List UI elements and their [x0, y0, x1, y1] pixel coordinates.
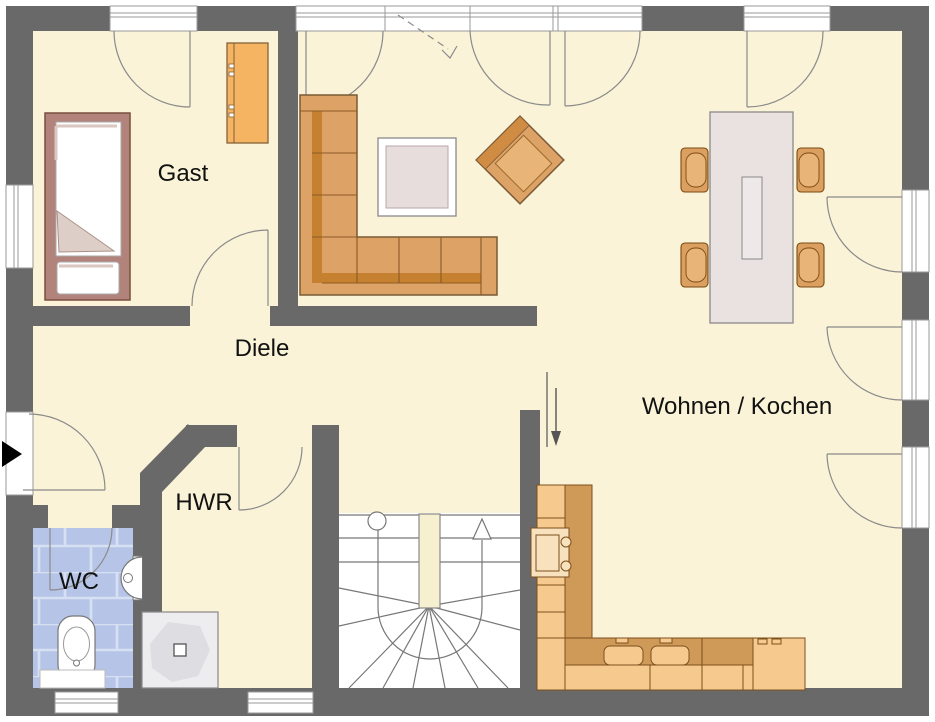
coffee-table-inset	[386, 146, 448, 208]
wardrobe-handle	[229, 64, 234, 68]
window-wc-south	[55, 692, 118, 713]
wall-wc-shower-divider	[133, 612, 142, 688]
wall-wc-north-b	[112, 505, 162, 528]
shower	[142, 612, 218, 688]
room-label-gast: Gast	[158, 160, 209, 187]
wall-gast-living	[278, 31, 298, 326]
wall-wc-north-a	[33, 505, 48, 528]
wall-hwr-east	[312, 425, 339, 688]
kitchen-cabinet-run-west	[537, 485, 565, 690]
wc-radiator	[40, 670, 105, 688]
wardrobe-handle	[229, 113, 234, 117]
shower-drain	[174, 644, 186, 656]
wardrobe-body	[227, 43, 268, 143]
stair-newel-spine	[419, 514, 440, 608]
toilet-bowl	[64, 627, 90, 661]
sink-basin	[604, 646, 643, 665]
stove-knob	[561, 537, 571, 547]
wall-hwr-north	[186, 425, 237, 447]
sink-faucet	[616, 638, 628, 643]
dining-chair	[797, 148, 824, 192]
floor-plan-canvas: Gast Diele HWR WC Wohnen / Kochen	[0, 0, 935, 722]
dining-chair	[797, 243, 824, 287]
sink-faucet	[660, 638, 672, 643]
wall-gast-diele-right	[270, 306, 537, 326]
window-gast-west	[6, 185, 33, 268]
table-runner	[742, 177, 762, 259]
wall-gast-diele-left	[33, 306, 190, 326]
kitchen-tall-cabinet	[753, 638, 805, 690]
wardrobe-handle	[229, 72, 234, 76]
floor-plan: Gast Diele HWR WC Wohnen / Kochen	[0, 0, 935, 722]
room-label-wohnen-kochen: Wohnen / Kochen	[642, 393, 832, 420]
room-label-diele: Diele	[235, 335, 290, 362]
guest-wardrobe	[227, 43, 268, 143]
dining-chair	[681, 243, 708, 287]
guest-bed	[45, 113, 130, 300]
dining-chair	[681, 148, 708, 192]
kitchen-cabinet-run-south	[565, 665, 753, 690]
room-label-wc: WC	[59, 568, 99, 595]
window-hwr-south	[248, 692, 313, 713]
basin-drain	[124, 574, 133, 583]
room-label-hwr: HWR	[175, 489, 232, 516]
coffee-table	[378, 138, 456, 216]
sink-basin	[651, 646, 689, 665]
stair-walk-line-start	[368, 512, 386, 530]
toilet-drain	[74, 660, 80, 666]
stove-knob	[561, 561, 571, 571]
wardrobe-handle	[229, 105, 234, 109]
stove	[531, 528, 571, 577]
